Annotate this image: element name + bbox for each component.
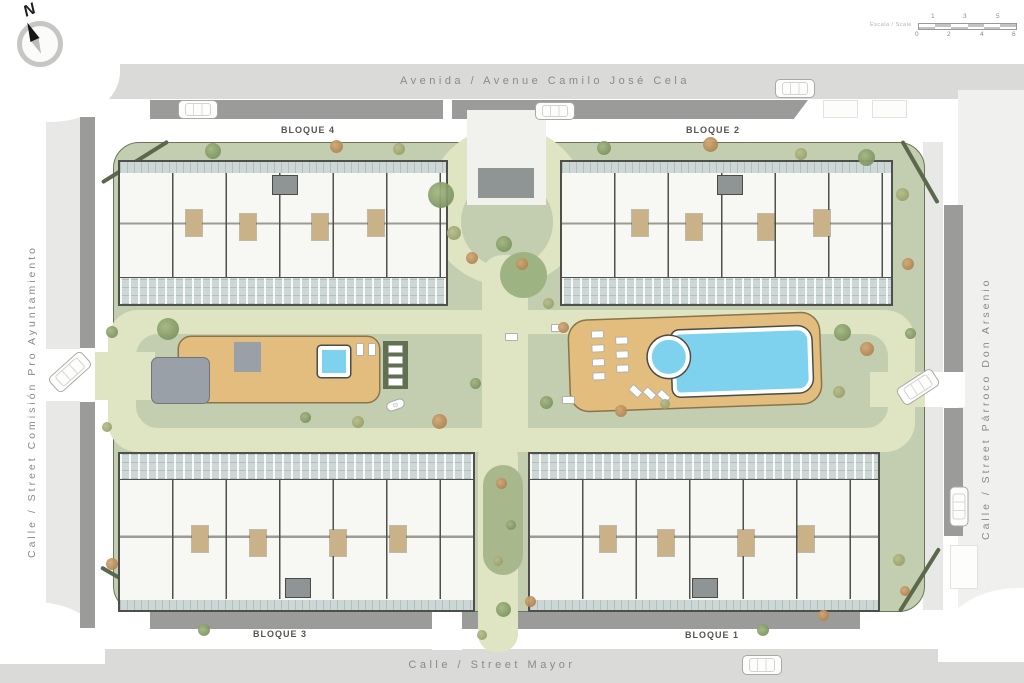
terrace-strip	[120, 454, 473, 480]
bathroom	[390, 526, 406, 552]
tree	[496, 236, 512, 252]
scale-segment	[951, 27, 967, 30]
parking-lane	[462, 612, 860, 629]
bathroom	[240, 214, 256, 240]
scale-tick: 5	[996, 13, 1000, 20]
tree	[432, 414, 447, 429]
terrace-strip	[530, 454, 878, 480]
scale-segment	[984, 27, 1000, 30]
tree	[902, 258, 914, 270]
tree	[818, 610, 829, 621]
car	[535, 102, 575, 120]
street-label-bottom: Calle / Street Mayor	[0, 659, 1024, 671]
tree	[496, 602, 511, 617]
parking-space	[823, 100, 858, 118]
tree	[703, 137, 718, 152]
bathroom	[192, 526, 208, 552]
sun-lounger	[592, 372, 605, 380]
street-balcony-strip	[120, 162, 446, 173]
tree	[393, 143, 405, 155]
sun-lounger	[388, 367, 403, 375]
west-entry-path	[95, 352, 155, 400]
bathroom	[814, 210, 830, 236]
tree	[858, 149, 875, 166]
site-plan: Avenida / Avenue Camilo José Cela Calle …	[0, 0, 1024, 683]
bathroom	[758, 214, 774, 240]
tree	[205, 143, 221, 159]
bathroom	[632, 210, 648, 236]
tree	[896, 188, 909, 201]
tree	[860, 342, 874, 356]
tree	[106, 558, 118, 570]
tree	[477, 630, 487, 640]
sports-court	[152, 358, 209, 403]
tree	[447, 226, 461, 240]
stair-core	[285, 578, 311, 598]
scale-bar-segments	[918, 23, 1017, 30]
walk-gap-south	[432, 610, 462, 650]
street-label-top: Avenida / Avenue Camilo José Cela	[0, 75, 1024, 87]
entrance-structure	[478, 168, 534, 198]
tree	[558, 322, 569, 333]
terrace-strip	[120, 277, 446, 304]
parking-lane	[80, 402, 95, 628]
sun-lounger	[628, 384, 643, 399]
parking-space	[872, 100, 907, 118]
tree	[833, 386, 845, 398]
scale-label: Escala / Scale	[870, 22, 912, 28]
terrace-strip	[562, 277, 891, 304]
compass-north-label: N	[21, 0, 39, 21]
label-bloque-3: BLOQUE 3	[225, 629, 335, 639]
bathroom	[686, 214, 702, 240]
swimming-pool	[671, 326, 813, 397]
bathroom	[368, 210, 384, 236]
stair-core	[717, 175, 743, 195]
sun-lounger	[591, 330, 604, 338]
label-bloque-1: BLOQUE 1	[657, 630, 767, 640]
scale-tick: 4	[980, 31, 984, 38]
street-balcony-strip	[120, 600, 473, 610]
building-bloque-2	[560, 160, 893, 306]
sun-lounger	[356, 343, 364, 356]
parking-lane	[150, 612, 432, 629]
bathroom	[600, 526, 616, 552]
tree	[900, 586, 910, 596]
sun-lounger	[592, 358, 605, 366]
sun-lounger	[388, 345, 403, 353]
bush	[157, 318, 179, 340]
sun-lounger	[562, 396, 575, 404]
tree	[795, 148, 807, 160]
tree	[905, 328, 916, 339]
tree	[506, 520, 516, 530]
building-bloque-3	[118, 452, 475, 612]
tree	[525, 596, 536, 607]
bathroom	[312, 214, 328, 240]
tree	[597, 141, 611, 155]
scale-tick: 3	[963, 13, 967, 20]
scale-tick: 6	[1012, 31, 1016, 38]
parking-lane	[80, 117, 95, 348]
sun-lounger	[616, 350, 629, 358]
tree	[300, 412, 311, 423]
parking-lane	[944, 205, 963, 373]
tree	[496, 478, 507, 489]
scale-tick: 2	[947, 31, 951, 38]
sun-lounger	[615, 336, 628, 344]
scale-bar-row	[919, 27, 1016, 30]
bathroom	[738, 530, 754, 556]
sun-lounger	[616, 364, 629, 372]
bathroom	[250, 530, 266, 556]
deck-structure	[234, 342, 261, 372]
building-bloque-1	[528, 452, 880, 612]
tree	[615, 405, 627, 417]
street-balcony-strip	[530, 600, 878, 610]
sun-lounger	[388, 378, 403, 386]
scale-tick: 1	[931, 13, 935, 20]
tree	[893, 554, 905, 566]
tree	[540, 396, 553, 409]
scale-bar: Escala / Scale 1 3 5 0 2 4 6	[870, 12, 1022, 40]
street-corner	[938, 588, 1024, 662]
sun-lounger	[642, 386, 657, 401]
scale-segment	[968, 27, 984, 30]
bathroom	[658, 530, 674, 556]
sun-lounger	[388, 356, 403, 364]
tree	[466, 252, 478, 264]
scale-segment	[935, 27, 951, 30]
bathroom	[186, 210, 202, 236]
tree	[543, 298, 554, 309]
tree	[428, 182, 454, 208]
sun-lounger	[505, 333, 518, 341]
tree	[493, 556, 503, 566]
scale-segment	[919, 27, 935, 30]
stair-core	[272, 175, 298, 195]
scale-tick: 0	[915, 31, 919, 38]
tree	[106, 326, 118, 338]
sun-lounger	[368, 343, 376, 356]
pool-deck	[569, 313, 822, 412]
tree	[516, 258, 528, 270]
label-bloque-2: BLOQUE 2	[658, 125, 768, 135]
street-label-left: Calle / Street Comisión Pro Ayuntamiento	[26, 168, 38, 558]
kids-pool	[318, 346, 350, 377]
car	[178, 100, 218, 119]
tree	[102, 422, 112, 432]
tree	[834, 324, 851, 341]
building-bloque-4	[118, 160, 448, 306]
stair-core	[692, 578, 718, 598]
street-balcony-strip	[562, 162, 891, 173]
street-corner	[0, 56, 120, 122]
tree	[198, 624, 210, 636]
tree	[352, 416, 364, 428]
tree	[470, 378, 481, 389]
parking-space	[950, 545, 978, 589]
sun-lounger	[591, 344, 604, 352]
scale-segment	[1000, 27, 1016, 30]
car	[950, 487, 969, 527]
label-bloque-4: BLOQUE 4	[253, 125, 363, 135]
bathroom	[798, 526, 814, 552]
tree	[330, 140, 343, 153]
bathroom	[330, 530, 346, 556]
tree	[660, 399, 670, 409]
street-label-right: Calle / Street Párroco Don Arsenio	[980, 200, 992, 540]
